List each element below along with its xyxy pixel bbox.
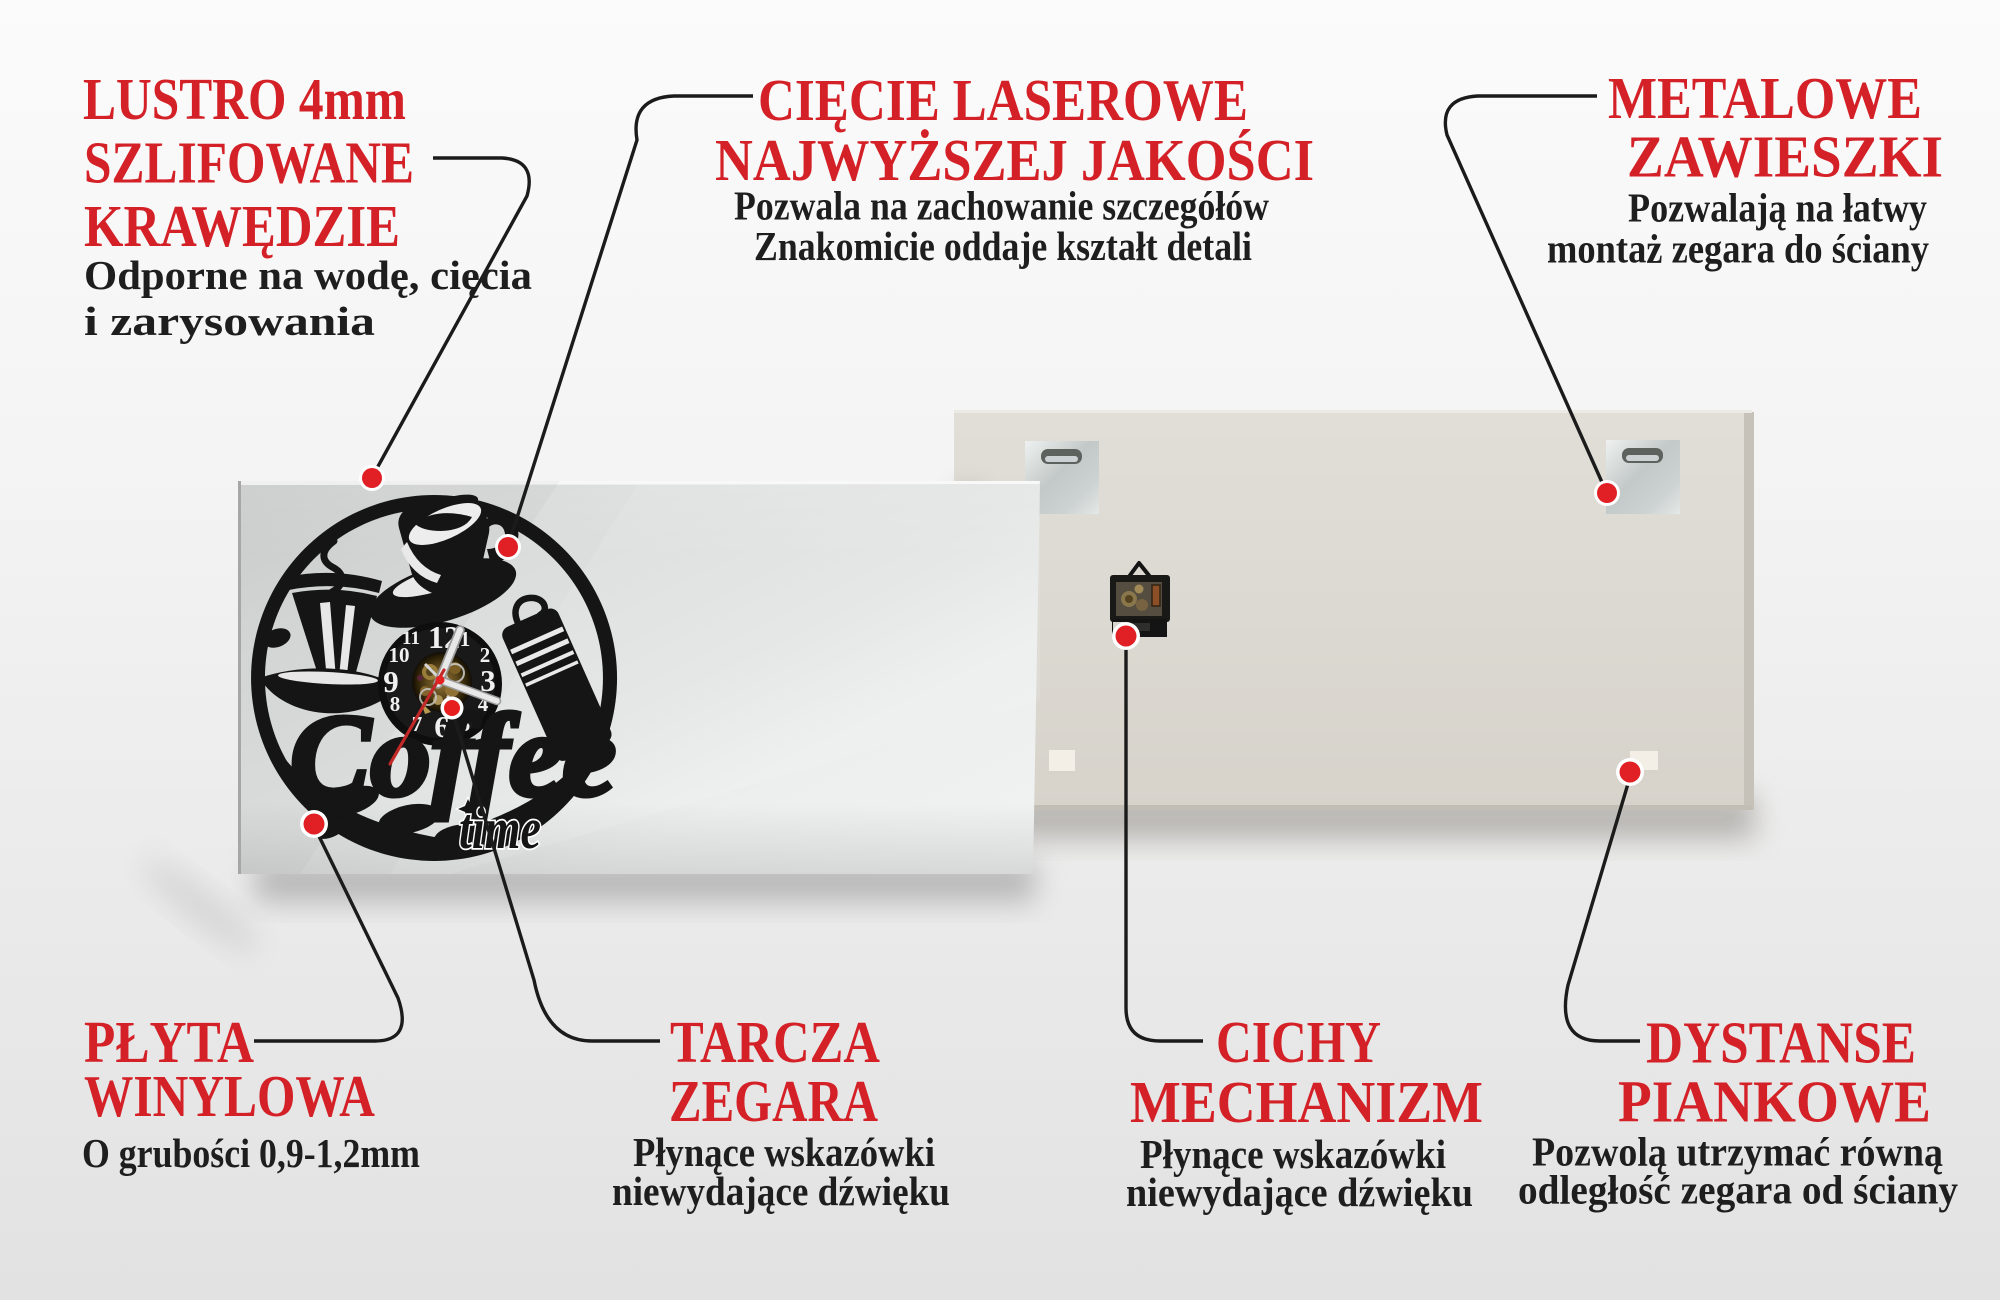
svg-text:KRAWĘDZIE: KRAWĘDZIE xyxy=(84,193,400,259)
svg-text:LUSTRO 4mm: LUSTRO 4mm xyxy=(83,66,406,132)
svg-text:time: time xyxy=(459,796,541,861)
svg-text:DYSTANSE: DYSTANSE xyxy=(1646,1010,1916,1076)
svg-text:niewydające dźwięku: niewydające dźwięku xyxy=(1126,1169,1473,1215)
svg-text:11: 11 xyxy=(402,628,420,649)
svg-text:MECHANIZM: MECHANIZM xyxy=(1130,1069,1483,1135)
svg-text:O grubości 0,9-1,2mm: O grubości 0,9-1,2mm xyxy=(82,1130,420,1176)
svg-text:ZEGARA: ZEGARA xyxy=(669,1068,878,1134)
svg-text:2: 2 xyxy=(480,643,491,667)
svg-text:ZAWIESZKI: ZAWIESZKI xyxy=(1627,124,1943,190)
svg-text:Odporne na wodę, cięcia: Odporne na wodę, cięcia xyxy=(84,252,532,298)
svg-text:i zarysowania: i zarysowania xyxy=(84,298,375,344)
svg-text:TARCZA: TARCZA xyxy=(670,1009,880,1075)
svg-text:Pozwala na zachowanie szczegół: Pozwala na zachowanie szczegółów xyxy=(734,183,1269,229)
svg-text:Pozwalają na łatwy: Pozwalają na łatwy xyxy=(1628,185,1927,231)
svg-text:SZLIFOWANE: SZLIFOWANE xyxy=(84,130,414,196)
svg-text:CIĘCIE LASEROWE: CIĘCIE LASEROWE xyxy=(758,67,1248,133)
svg-text:niewydające dźwięku: niewydające dźwięku xyxy=(612,1168,950,1214)
svg-text:PIANKOWE: PIANKOWE xyxy=(1618,1069,1931,1135)
svg-text:WINYLOWA: WINYLOWA xyxy=(84,1063,375,1129)
svg-text:odległość zegara od ściany: odległość zegara od ściany xyxy=(1518,1167,1958,1213)
svg-text:Znakomicie oddaje kształt deta: Znakomicie oddaje kształt detali xyxy=(754,223,1252,269)
svg-text:CICHY: CICHY xyxy=(1216,1009,1381,1075)
svg-text:METALOWE: METALOWE xyxy=(1608,65,1922,131)
svg-text:montaż zegara do ściany: montaż zegara do ściany xyxy=(1547,226,1929,272)
